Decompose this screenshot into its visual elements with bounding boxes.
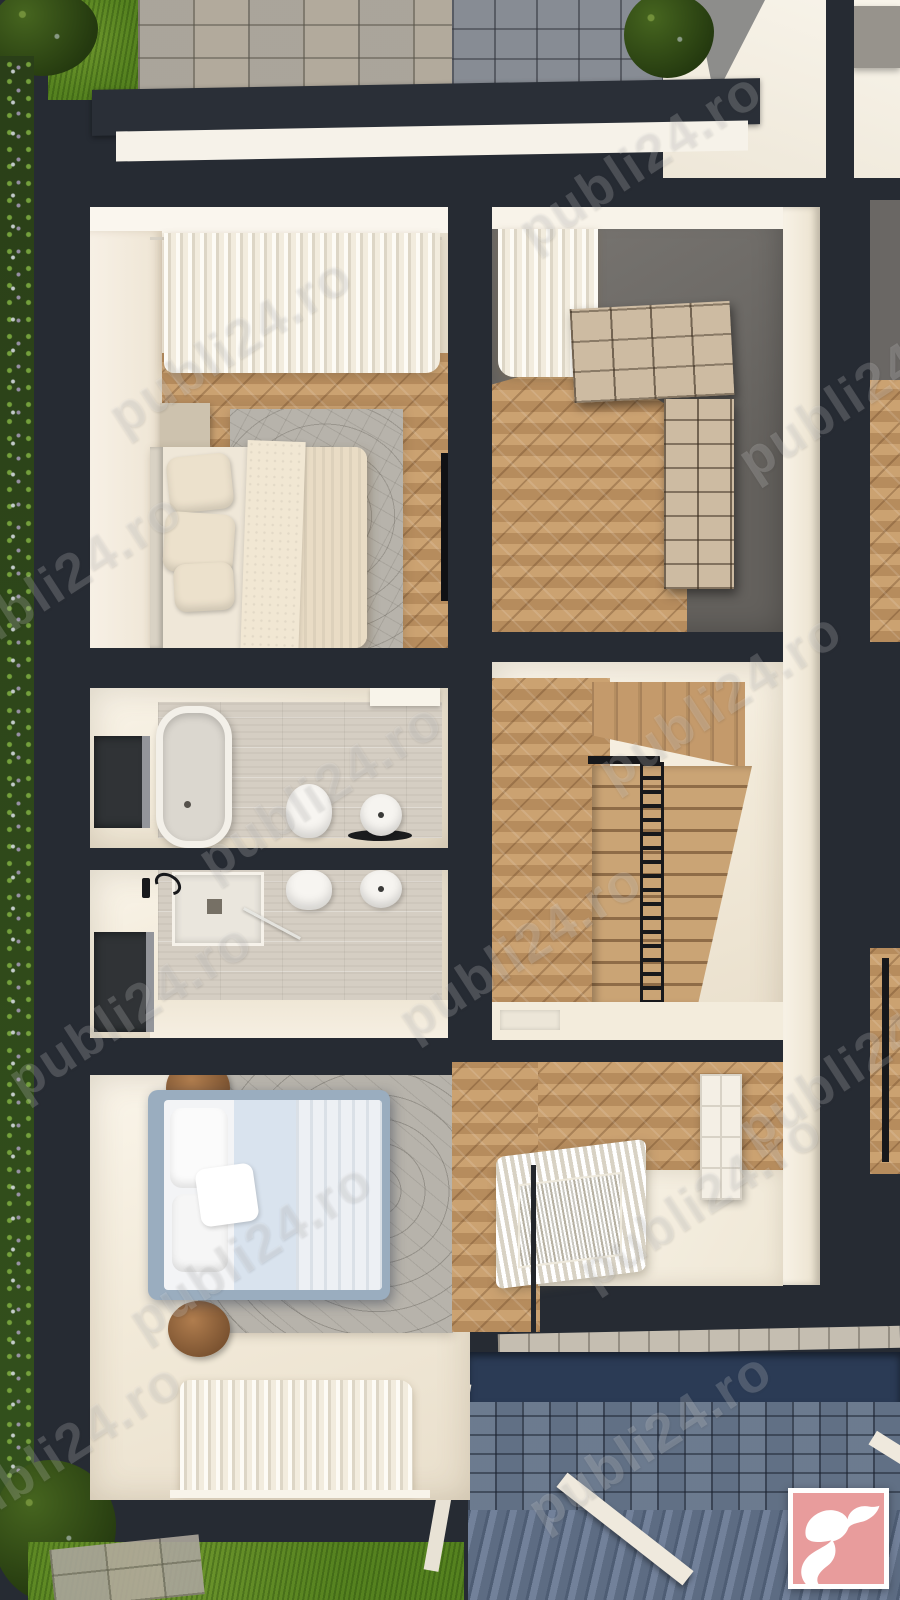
window-sill-bottom [170, 1490, 430, 1498]
throw-blanket [240, 440, 305, 648]
shower-faucet [142, 878, 150, 898]
faucet-dot [378, 812, 384, 818]
patio-pavers-light [138, 0, 456, 92]
wardrobe-shelf-top [570, 301, 735, 403]
toilet-2 [286, 870, 332, 910]
headboard [150, 447, 163, 648]
bathroom-2 [90, 870, 448, 1038]
pool-navy-band [468, 1352, 900, 1404]
bathroom-1-window [94, 736, 150, 828]
logo-background [793, 1493, 884, 1584]
neighbour-gray-slab [870, 200, 900, 380]
bed-1 [150, 447, 367, 648]
bathroom-2-window [94, 932, 154, 1032]
bird-icon [793, 1493, 884, 1584]
wall-strip-right [783, 207, 820, 1285]
neighbour-railing [882, 958, 889, 1162]
nightstand-1 [160, 403, 210, 449]
bathroom-1-ledge [370, 688, 440, 706]
shower-drain [207, 899, 222, 914]
bedroom-2-curtain [180, 1380, 413, 1492]
stair-railing [640, 762, 664, 1014]
ceiling-edge [492, 207, 783, 229]
mattress-sheer-textile [496, 1139, 646, 1289]
bathroom-2-wall-bottom [150, 1000, 448, 1038]
neighbour-floor-1 [870, 380, 900, 642]
stair-hall [492, 662, 783, 1040]
bedroom-1-curtain [164, 233, 440, 373]
pillow-6 [194, 1162, 260, 1228]
bookcase-cubbies [700, 1074, 742, 1200]
floorplan-render: publi24.ropubli24.ropubli24.ropubli24.ro… [0, 0, 900, 1600]
terrace-gray-slab [852, 6, 900, 68]
dressing-room [492, 207, 783, 632]
garden-strip-left [0, 56, 34, 1526]
bathroom-1 [90, 688, 448, 848]
blanket-2 [296, 1100, 382, 1290]
doormat [500, 1010, 560, 1030]
wardrobe-shelf-side [664, 399, 734, 589]
faucet-dot [378, 886, 384, 892]
sink-2 [360, 870, 402, 908]
shower-tray [172, 872, 264, 946]
wall-notch-top-right [826, 0, 854, 212]
bedroom-1 [90, 207, 448, 648]
ceiling-edge [90, 207, 448, 233]
bed-2 [148, 1090, 390, 1300]
toilet-1 [286, 784, 332, 838]
staircase-steps [592, 766, 752, 1006]
pillow-3 [173, 561, 235, 612]
bedroom-2 [90, 1075, 470, 1500]
stool-2 [168, 1301, 230, 1357]
tub-drain [184, 801, 191, 808]
pillow-1 [165, 452, 235, 514]
wall-seam [531, 1165, 536, 1333]
sink-1 [360, 794, 402, 836]
bathtub [156, 706, 232, 848]
publi24-logo [788, 1488, 889, 1589]
tv-panel [441, 453, 448, 601]
